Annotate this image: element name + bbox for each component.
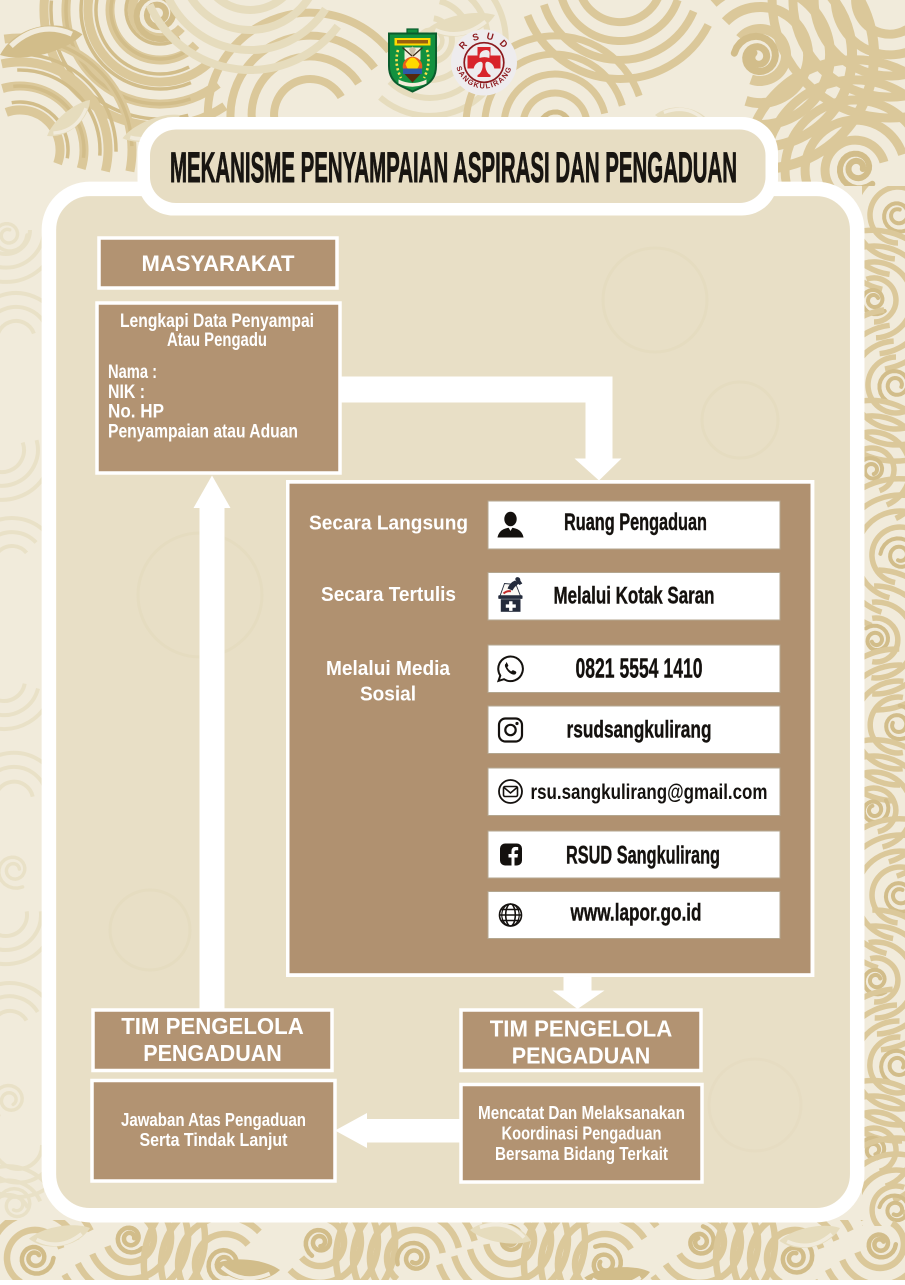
svg-text:No. HP: No. HP bbox=[108, 401, 164, 423]
svg-text:Secara Langsung: Secara Langsung bbox=[309, 513, 468, 535]
svg-text:MEKANISME PENYAMPAIAN ASPIRASI: MEKANISME PENYAMPAIAN ASPIRASI DAN PENGA… bbox=[170, 145, 737, 192]
svg-text:Secara Tertulis: Secara Tertulis bbox=[321, 584, 456, 606]
svg-text:rsu.sangkulirang@gmail.com: rsu.sangkulirang@gmail.com bbox=[531, 780, 768, 804]
svg-text:TIM PENGELOLA: TIM PENGELOLA bbox=[490, 1016, 673, 1042]
svg-text:PENGADUAN: PENGADUAN bbox=[143, 1040, 282, 1066]
svg-text:PENGADUAN: PENGADUAN bbox=[512, 1043, 651, 1069]
svg-text:Nama :: Nama : bbox=[108, 361, 157, 383]
svg-text:Penyampaian atau Aduan: Penyampaian atau Aduan bbox=[108, 420, 298, 442]
svg-text:Atau Pengadu: Atau Pengadu bbox=[167, 329, 267, 351]
svg-text:Ruang Pengaduan: Ruang Pengaduan bbox=[564, 509, 707, 536]
svg-text:RSUD Sangkulirang: RSUD Sangkulirang bbox=[566, 842, 720, 870]
svg-text:Bersama Bidang Terkait: Bersama Bidang Terkait bbox=[495, 1143, 668, 1164]
svg-text:Koordinasi Pengaduan: Koordinasi Pengaduan bbox=[502, 1123, 662, 1144]
svg-text:0821 5554 1410: 0821 5554 1410 bbox=[576, 653, 703, 684]
svg-text:TIM PENGELOLA: TIM PENGELOLA bbox=[121, 1013, 304, 1039]
svg-text:rsudsangkulirang: rsudsangkulirang bbox=[567, 717, 712, 744]
svg-text:www.lapor.go.id: www.lapor.go.id bbox=[570, 900, 702, 927]
svg-text:Serta Tindak Lanjut: Serta Tindak Lanjut bbox=[140, 1129, 288, 1150]
svg-text:Melalui Media: Melalui Media bbox=[326, 658, 451, 680]
svg-text:Mencatat Dan Melaksanakan: Mencatat Dan Melaksanakan bbox=[478, 1102, 685, 1123]
svg-text:NIK :: NIK : bbox=[108, 381, 145, 403]
svg-text:Jawaban Atas Pengaduan: Jawaban Atas Pengaduan bbox=[121, 1109, 306, 1130]
svg-text:MASYARAKAT: MASYARAKAT bbox=[142, 251, 296, 276]
svg-text:Sosial: Sosial bbox=[360, 684, 416, 706]
svg-text:Melalui Kotak Saran: Melalui Kotak Saran bbox=[554, 583, 715, 610]
